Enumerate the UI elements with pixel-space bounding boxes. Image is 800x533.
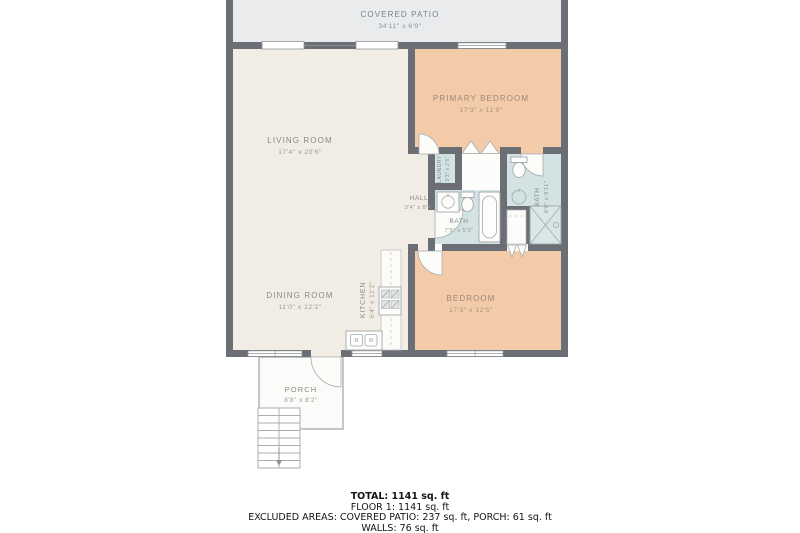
primary-bedroom-window bbox=[458, 43, 506, 49]
walls-area-text: WALLS: 76 sq. ft bbox=[0, 524, 800, 533]
bath1-toilet bbox=[461, 192, 474, 212]
primary-closet-area bbox=[462, 154, 500, 190]
hall-dims: 3'4" x 8'4" bbox=[404, 205, 433, 211]
bedroom-top-wall-right bbox=[528, 244, 568, 251]
porch-dims: 8'8" x 8'2" bbox=[284, 397, 317, 404]
hall-right-wall-upper bbox=[428, 154, 435, 210]
hall-right-wall-lower bbox=[428, 238, 435, 251]
primary-wall-stub-right1 bbox=[507, 147, 521, 154]
bedroom-top-wall-stub bbox=[408, 244, 418, 251]
floor-plan-svg: COVERED PATIO 34'11" x 6'9" LIVING ROOM … bbox=[0, 0, 800, 533]
primary-bedroom-dims: 17'3" x 11'9" bbox=[459, 107, 502, 114]
dining-window bbox=[248, 351, 302, 357]
kitchen-sink bbox=[346, 331, 382, 350]
bath1-dims: 7'5" x 5'2" bbox=[444, 228, 473, 234]
primary-wall-stub-right2 bbox=[543, 147, 568, 154]
covered-patio-label: COVERED PATIO bbox=[361, 10, 440, 19]
kitchen-bedroom-wall bbox=[408, 251, 415, 357]
total-area-text: TOTAL: 1141 sq. ft bbox=[0, 492, 800, 503]
floor-plan-page: COVERED PATIO 34'11" x 6'9" LIVING ROOM … bbox=[0, 0, 800, 533]
bedroom-closet bbox=[507, 210, 526, 244]
dining-room-label: DINING ROOM bbox=[266, 291, 333, 300]
kitchen-stove bbox=[379, 287, 401, 315]
right-wall bbox=[561, 49, 568, 357]
patio-left-wall bbox=[226, 0, 233, 42]
closet2-shower-divider bbox=[526, 206, 530, 244]
kitchen-window bbox=[352, 351, 382, 357]
hall-label: HALL bbox=[410, 195, 428, 202]
bedroom-window bbox=[447, 351, 503, 357]
left-wall bbox=[226, 49, 233, 357]
kitchen-dims: 6'4" x 12'2" bbox=[369, 281, 376, 318]
bath1-bathtub bbox=[479, 192, 500, 242]
closet2-top-wall bbox=[507, 206, 526, 210]
bedroom-top-wall-mid bbox=[442, 244, 507, 251]
bedroom-label: BEDROOM bbox=[446, 294, 495, 303]
living-room-label: LIVING ROOM bbox=[267, 136, 332, 145]
living-room-dims: 17'4" x 20'6" bbox=[278, 149, 322, 156]
covered-patio-dims: 34'11" x 6'9" bbox=[378, 23, 421, 30]
living-primary-wall bbox=[408, 49, 415, 147]
primary-wall-stub-left bbox=[408, 147, 419, 154]
porch-label: PORCH bbox=[285, 385, 318, 394]
covered-patio-area bbox=[233, 0, 561, 42]
kitchen-label: KITCHEN bbox=[360, 282, 367, 318]
baths-divider-wall bbox=[500, 147, 507, 251]
primary-bedroom-label: PRIMARY BEDROOM bbox=[433, 94, 529, 103]
area-summary: TOTAL: 1141 sq. ft FLOOR 1: 1141 sq. ft … bbox=[0, 492, 800, 533]
laundry-dims: 3'3" x 2'6" bbox=[445, 156, 451, 182]
bath1-label: BATH bbox=[450, 218, 469, 225]
laundry-bottom-wall bbox=[435, 183, 462, 190]
bath1-vanity-sink bbox=[437, 192, 459, 212]
bath2-label: BATH bbox=[534, 188, 541, 207]
bath2-dims: 6'0" x 9'11" bbox=[544, 181, 550, 213]
bedroom-dims: 17'3" x 12'5" bbox=[449, 307, 493, 314]
patio-right-wall bbox=[561, 0, 568, 42]
staircase bbox=[258, 408, 300, 468]
laundry-label: LAUNDRY bbox=[437, 155, 443, 183]
dining-room-dims: 11'0" x 12'2" bbox=[278, 304, 321, 311]
